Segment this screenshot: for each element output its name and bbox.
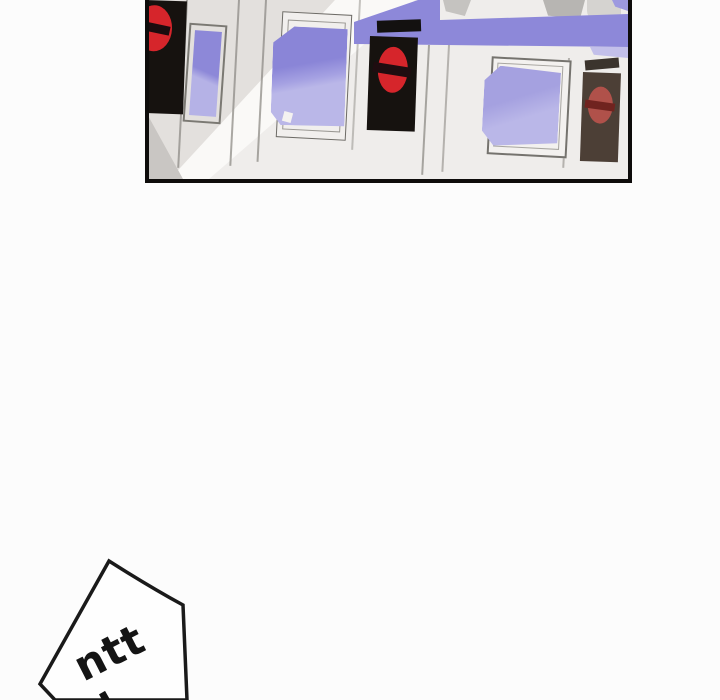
fare-gate — [480, 52, 578, 172]
no-entry-sign-shadowed — [580, 72, 621, 162]
gate-seam-line — [441, 45, 450, 172]
comic-panel — [145, 0, 632, 183]
ticket-gate-screen — [270, 26, 347, 128]
no-entry-sign — [145, 0, 187, 114]
sign-top-bar — [377, 19, 421, 33]
comic-page: ntt — [0, 0, 720, 700]
no-entry-sign — [367, 36, 418, 132]
machine-top-shape — [443, 0, 471, 16]
sign-top-bar — [585, 58, 620, 71]
gate-purple-ledge-light — [590, 47, 628, 58]
gate-seam-line — [421, 45, 430, 175]
ticket-gate-screen — [481, 65, 561, 149]
